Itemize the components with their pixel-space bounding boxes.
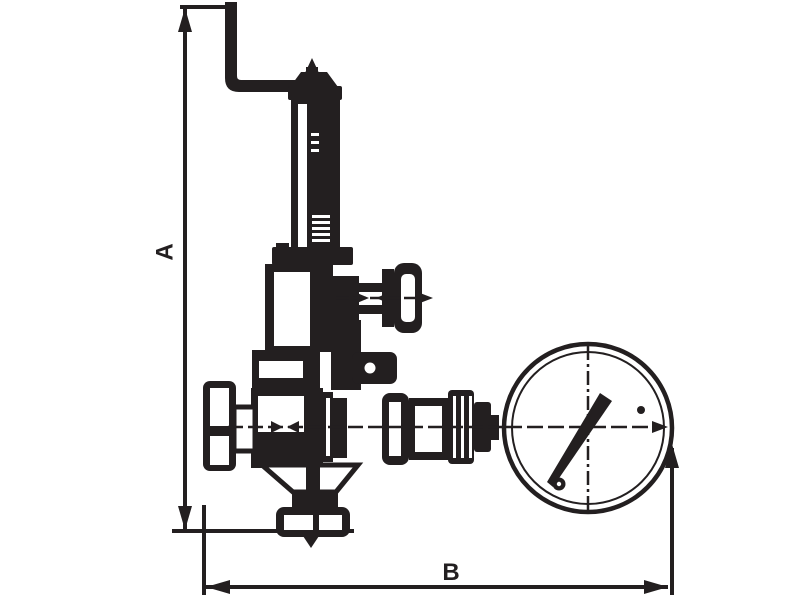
dim-b-right-extension [670, 448, 674, 595]
dim-a-label: A [152, 243, 179, 260]
pressure-gauge [504, 344, 672, 512]
cap-flange [288, 86, 342, 100]
dim-a-arrow-up [178, 8, 192, 32]
collar [272, 247, 353, 265]
dim-b-arrow-right [644, 580, 668, 594]
lever-handle [225, 2, 296, 92]
dim-a-top-extension [180, 5, 236, 9]
inlet-flow-arrow [303, 536, 319, 548]
handwheel-stem [234, 407, 255, 451]
tee-centerline-arrow [420, 293, 433, 303]
dim-b-label: B [442, 559, 459, 586]
adjusting-cap [290, 72, 338, 87]
tee-flow-arrow-right [357, 293, 369, 303]
valve-technical-drawing: A B [0, 0, 800, 598]
dim-b-line [206, 585, 668, 589]
tee-branch-base [331, 276, 359, 326]
gauge-set-dot [637, 406, 645, 414]
dim-a-line [183, 9, 187, 529]
dim-b-arrow-left [206, 580, 230, 594]
inlet-cone [262, 463, 358, 493]
dim-a-arrow-down [178, 506, 192, 530]
needle-pivot-hole [557, 482, 561, 486]
dim-b-left-extension [202, 505, 206, 595]
